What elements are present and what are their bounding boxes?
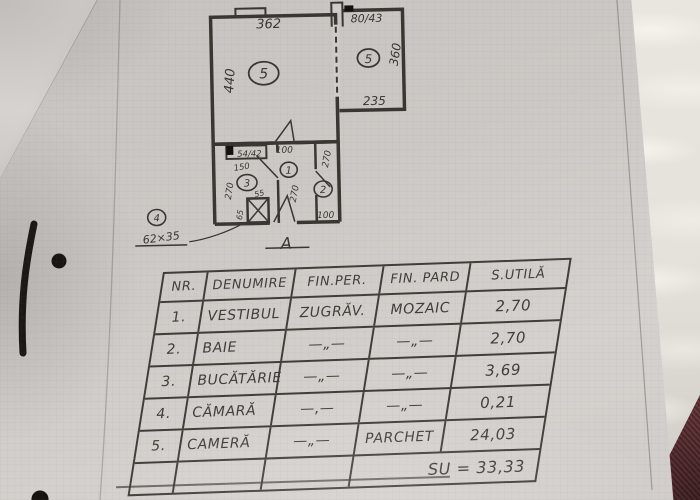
dim-right-bottom: 235 [363, 94, 386, 108]
dim-main-left: 440 [222, 68, 239, 94]
header-fin-per: FIN.PER. [292, 266, 384, 296]
hole-punch-dot-bottom [32, 491, 49, 500]
pen-stroke-mark [22, 224, 34, 353]
header-s-utila: S.UTILĂ [467, 260, 569, 291]
floor-plan-sketch: 362 440 5 80/43 5 360 235 54/42 150 3 27… [122, 0, 428, 272]
dim-bathroom-height: 270 [321, 149, 334, 168]
room-badge-bathroom: 2 [320, 185, 327, 196]
main-room-door-swing [275, 121, 294, 142]
header-fin-pard: FIN. PARD [380, 263, 471, 293]
hole-punch-dot [52, 254, 67, 269]
room-badge-main: 5 [259, 66, 268, 82]
folded-sheet-corner [0, 0, 110, 190]
room-badge-vestibule: 1 [285, 166, 292, 177]
header-denumire: DENUMIRE [204, 269, 296, 299]
photo-of-floor-plan-document: 362 440 5 80/43 5 360 235 54/42 150 3 27… [0, 0, 700, 500]
dim-kitchen-fixture: 65 [235, 209, 245, 220]
pantry-x-mark [247, 198, 268, 222]
kitchen-window-mark [226, 146, 233, 155]
dim-vestibule-height: 270 [289, 184, 302, 203]
wall-vent-mark [344, 5, 353, 11]
dim-right-top: 80/43 [351, 12, 383, 26]
pantry-size-label: 62×35 [142, 229, 181, 247]
room-badge-right: 5 [364, 52, 372, 66]
vertical-crease [100, 0, 120, 500]
dim-kitchen-window: 54/42 [237, 149, 262, 160]
room-badge-kitchen: 3 [244, 179, 251, 190]
dim-vestibule-top: 100 [276, 146, 294, 156]
total-usable-area: SU = 33,33 [350, 450, 540, 487]
dim-main-top: 362 [256, 17, 281, 33]
dim-right-side: 360 [387, 42, 404, 67]
room-badge-pantry: 4 [153, 213, 160, 224]
pantry-leader-line [189, 224, 243, 242]
dim-bathroom-bottom: 100 [317, 211, 335, 221]
dim-kitchen-door: 150 [233, 161, 251, 173]
section-marker-label: A [280, 234, 292, 253]
notch-erase [331, 4, 342, 13]
dim-kitchen-left: 270 [224, 182, 237, 201]
room-area-table: NR. DENUMIRE FIN.PER. FIN. PARD S.UTILĂ … [127, 258, 571, 497]
header-nr: NR. [160, 272, 208, 301]
